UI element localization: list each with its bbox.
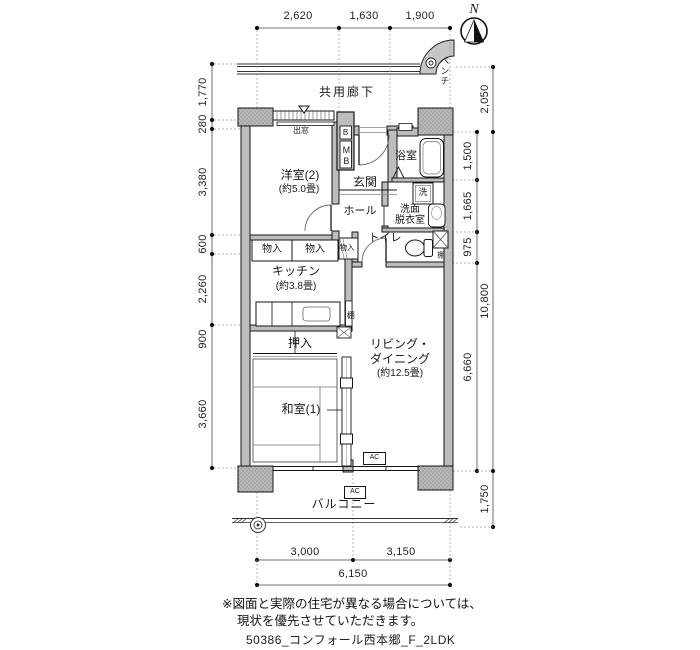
dim-right-outer-3: 1,750	[478, 469, 492, 529]
north-label: N	[462, 2, 486, 18]
dim-bottom-total: 6,150	[323, 568, 383, 581]
room-japanese1-label: 和室(1)	[266, 403, 336, 417]
washroom-label-line2: 脱衣室	[390, 215, 430, 227]
kitchen-counter	[256, 301, 352, 326]
corridor-label: 共用廊下	[312, 86, 382, 100]
room-living-label-line1: リビング・	[360, 338, 440, 352]
pipe-shaft	[433, 231, 448, 248]
balcony-drain	[251, 518, 266, 533]
bay-window	[273, 106, 334, 126]
dim-top-2: 1,630	[334, 10, 394, 23]
washroom-label-line1: 洗面	[390, 204, 430, 216]
room-kitchen-label: キッチン	[261, 265, 331, 279]
room-balcony-label: バルコニー	[309, 498, 379, 512]
balcony-rail	[232, 518, 458, 523]
north-arrow-icon	[461, 18, 487, 44]
storage2-label: 物入	[295, 244, 335, 256]
ac-label-living: AC	[363, 452, 386, 465]
washer-label: 洗	[413, 187, 433, 197]
corridor-column	[426, 58, 436, 68]
vanity-sink	[429, 204, 446, 227]
storage3-label: 物入	[334, 244, 360, 253]
dim-right-outer-1: 2,050	[478, 69, 492, 129]
plan-file-title: 50386_コンフォール西本郷_F_2LDK	[246, 631, 455, 648]
room-living-label-line2: ダイニング	[360, 353, 440, 367]
dim-left-3: 3,380	[196, 152, 210, 212]
dim-top-1: 2,620	[268, 10, 328, 23]
dim-left-7: 3,660	[196, 384, 210, 444]
meter-box-label: MB	[341, 143, 351, 169]
duct-box	[337, 327, 351, 338]
disclaimer-line2: 現状を優先させていただきます。	[237, 610, 423, 629]
meter-box-b-label: B	[338, 128, 353, 137]
dim-right-inner-3: 975	[461, 217, 475, 277]
kitchen-shelf-label: 棚	[346, 306, 355, 324]
bench-label: ベンチ	[439, 50, 449, 92]
floorplan-page: N ベンチ 共用廊下 出窓 B MB 洋室(2) (約5.0畳) 玄関 ホール …	[0, 0, 700, 650]
storage1-label: 物入	[252, 244, 292, 256]
dim-right-inner-4: 6,660	[461, 337, 475, 397]
corridor-lines	[237, 64, 420, 74]
room-kitchen-size: (約3.8畳)	[256, 281, 336, 293]
room-closet-label: 押入	[275, 337, 325, 351]
toilet-shelf-label: 棚	[436, 248, 445, 262]
dim-bottom-2: 3,150	[371, 546, 431, 559]
bath-vent	[399, 124, 412, 131]
dim-bottom-1: 3,000	[275, 546, 335, 559]
room-toilet-label: トイレ	[360, 232, 410, 245]
room-bath-label: 浴室	[381, 150, 431, 163]
dim-top-3: 1,900	[390, 10, 450, 23]
room-living-size: (約12.5畳)	[355, 368, 445, 380]
sliding-partition	[341, 357, 353, 466]
room-western2-size: (約5.0畳)	[259, 184, 339, 196]
room-hall-label: ホール	[330, 205, 390, 218]
dim-left-6: 900	[196, 309, 210, 369]
bay-window-label: 出窓	[286, 126, 316, 135]
room-entrance-label: 玄関	[340, 176, 390, 190]
room-western2-label: 洋室(2)	[265, 169, 335, 183]
dim-left-2: 280	[196, 94, 210, 154]
dim-right-outer-2: 10,800	[478, 271, 492, 331]
